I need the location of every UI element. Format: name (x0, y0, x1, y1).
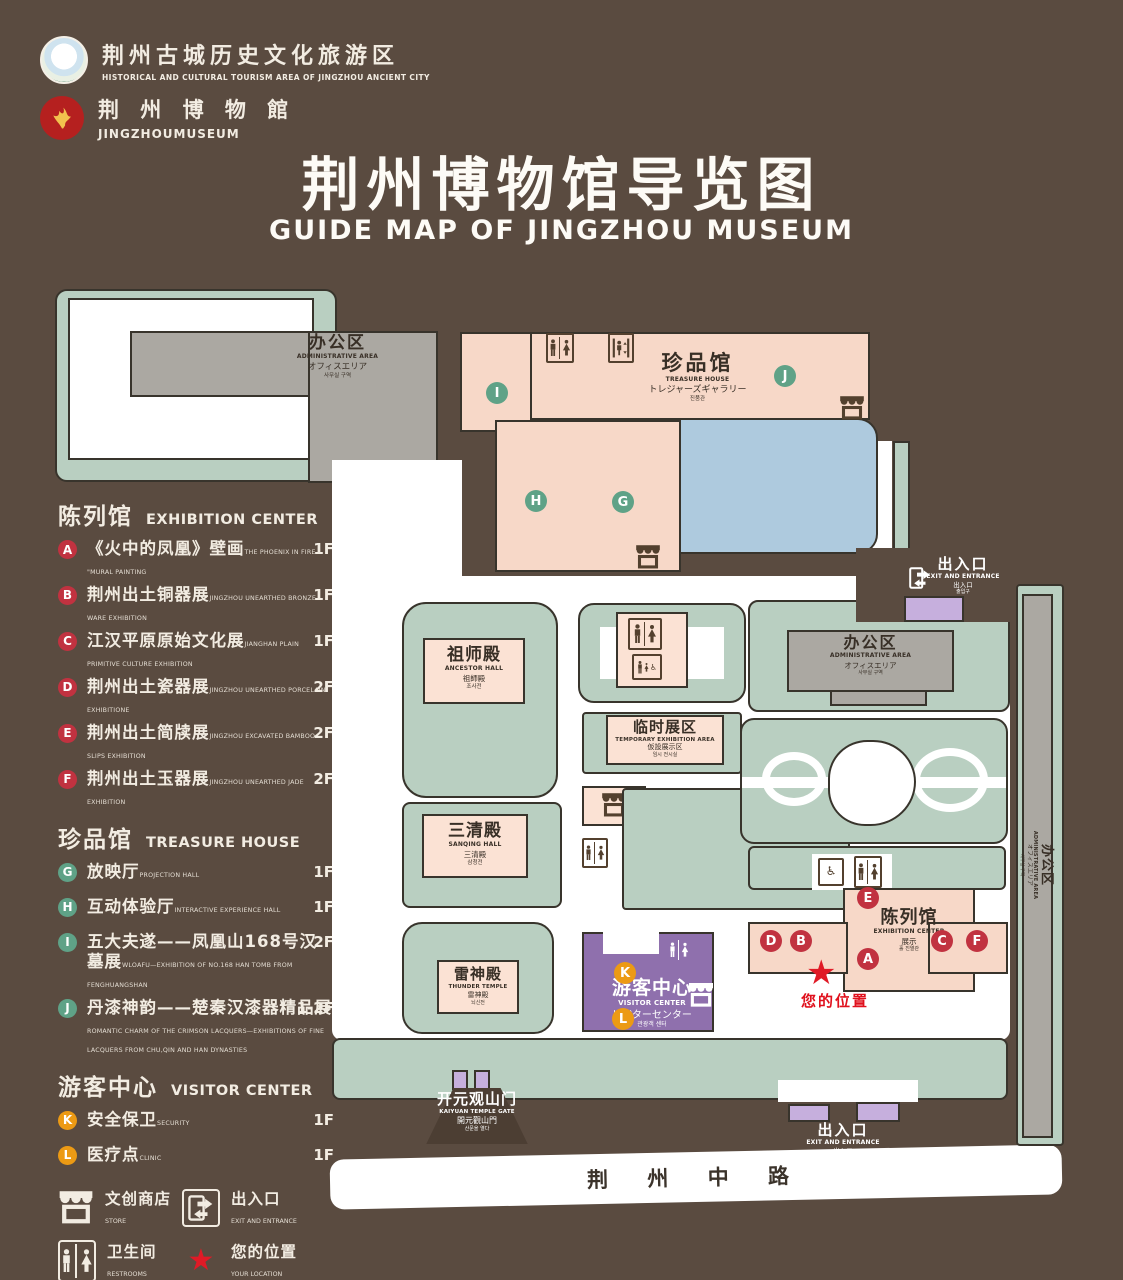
restroom-icon (666, 938, 692, 962)
map-marker-g: G (612, 491, 634, 513)
map-road (332, 460, 462, 590)
label-ancestor-hall: 祖师殿 ANCESTOR HALL 祖師殿 조사전 (423, 646, 525, 690)
map-exit-bottom-block-west (788, 1104, 830, 1122)
map-gate-pillar-west (452, 1070, 468, 1090)
map-marker-f: F (966, 930, 988, 952)
accessible-elevator-icon: ♿ (818, 858, 844, 886)
label-exit-top: 出入口 EXIT AND ENTRANCE 出入口 출입구 (898, 556, 1028, 595)
map-garden-loop-west (762, 752, 826, 806)
map-marker-d: D (760, 930, 782, 952)
restroom-icon (628, 618, 662, 650)
label-sanqing-hall: 三清殿 SANQING HALL 三清殿 삼청전 (422, 822, 528, 866)
map-marker-a: A (857, 948, 879, 970)
road-name: 荆 州 中 路 (587, 1160, 806, 1195)
map-exit-top-block (904, 596, 964, 622)
label-exhibition-center: 陈列馆 EXHIBITION CENTER 展示 홀 진열관 (843, 908, 975, 953)
store-icon (686, 982, 716, 1008)
label-admin-right: 办公区 ADMINISTRATIVE AREA オフィスエリア 사무실 구역 (787, 634, 954, 677)
map-marker-l: L (612, 1008, 634, 1030)
label-temp-exhibition: 临时展区 TEMPORARY EXHIBITION AREA 仮設展示区 임시 … (606, 719, 724, 758)
map-exit-bottom-court (778, 1080, 918, 1102)
elevator-icon (608, 333, 634, 363)
label-admin-topleft: 办公区 ADMINISTRATIVE AREA オフィスエリア 사무실 구역 (255, 334, 420, 379)
store-icon (634, 544, 662, 570)
map-admin-right-foot (830, 690, 927, 706)
family-restroom-icon: ♿ (632, 654, 662, 680)
label-admin-strip: 办公区 ADMINISTRATIVE AREA オフィスエリア 사무실 구역 (1017, 765, 1057, 965)
map-marker-h: H (525, 490, 547, 512)
store-icon (838, 395, 866, 421)
label-kaiyuan-gate: 开元观山门 KAIYUAN TEMPLE GATE 開元觀山門 산문을 열다 (414, 1091, 540, 1133)
restroom-icon (582, 838, 608, 868)
restroom-icon (854, 856, 882, 888)
map-gate-pillar-east (474, 1070, 490, 1090)
map-marker-b: B (790, 930, 812, 952)
label-treasure-house: 珍品馆 TREASURE HOUSE トレジャーズギャラリー 진품관 (610, 352, 785, 402)
map-marker-c: C (931, 930, 953, 952)
your-location-label: 您的位置 (773, 990, 897, 1011)
map-garden-loop-east (912, 748, 988, 812)
map-exit-bottom-block-east (856, 1102, 900, 1122)
label-thunder-temple: 雷神殿 THUNDER TEMPLE 雷神殿 뇌신전 (437, 966, 519, 1006)
map-marker-i: I (486, 382, 508, 404)
guide-map-poster: 荆州古城历史文化旅游区 HISTORICAL AND CULTURAL TOUR… (0, 0, 1123, 1280)
map-visitor-notch (603, 928, 659, 954)
map-marker-e: E (857, 887, 879, 909)
map-marker-j: J (774, 365, 796, 387)
map-marker-k: K (614, 962, 636, 984)
restroom-icon (546, 333, 574, 363)
museum-map: 办公区 ADMINISTRATIVE AREA オフィスエリア 사무실 구역 珍… (0, 0, 1123, 1280)
location-star-icon: ★ (806, 956, 836, 990)
map-road-jingzhou: 荆 州 中 路 (330, 1144, 1063, 1209)
